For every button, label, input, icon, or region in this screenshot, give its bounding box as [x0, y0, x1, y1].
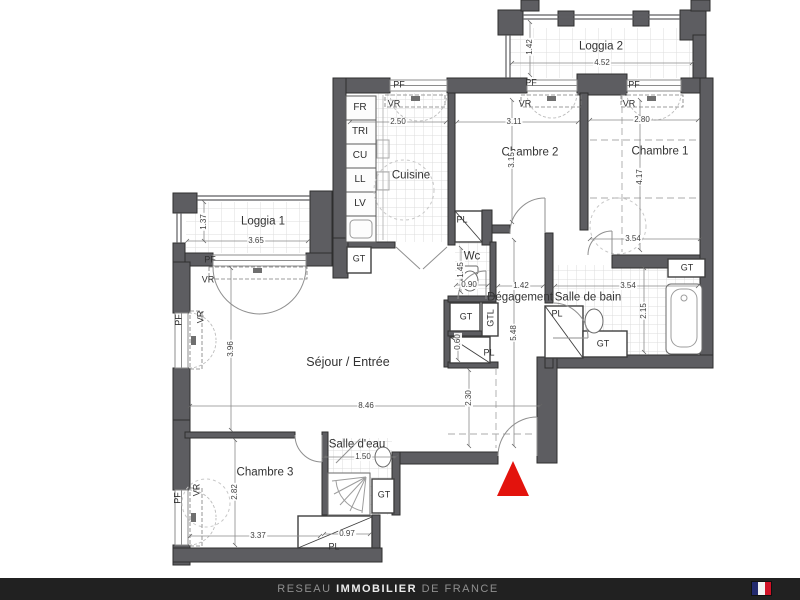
window-pf-chambre1: PF	[628, 81, 640, 90]
dim-sejour-width: 8.46	[357, 402, 375, 410]
brand-part-3: DE FRANCE	[422, 583, 499, 595]
dim-loggia1-width: 3.65	[247, 237, 265, 245]
mark-tri: TRI	[352, 127, 368, 137]
dim-wc-depth: 1.45	[457, 261, 465, 279]
blind-vr-sejour: VR	[202, 276, 215, 285]
dim-degagement-width: 1.42	[512, 282, 530, 290]
dim-chambre2-width: 3.11	[506, 118, 523, 126]
closet-pl-chambre2: PL	[456, 216, 467, 225]
window-pf-chambre3: PF	[174, 492, 183, 504]
dim-placard-chambre3-width: 0.97	[338, 530, 356, 538]
mark-cu-cooker: CU	[353, 151, 367, 161]
blind-vr-chambre2: VR	[519, 100, 532, 109]
mark-fr-fridge: FR	[353, 103, 366, 113]
dim-placard-depth: 0.60	[454, 333, 462, 351]
room-label-chambre-1: Chambre 1	[632, 146, 689, 158]
blind-vr-chambre1: VR	[623, 100, 636, 109]
blind-vr-chambre3: VR	[193, 484, 202, 497]
dim-cuisine-width: 2.50	[389, 118, 407, 126]
room-label-degagement: Dégagement	[487, 292, 553, 304]
closet-pl-chambre3: PL	[328, 543, 339, 552]
floor-plan-page: Loggia 2 Chambre 1 Chambre 2 Cuisine Log…	[0, 0, 800, 600]
dim-chambre1-width: 2.80	[633, 116, 651, 124]
dim-salle-de-bain-width: 3.54	[619, 282, 637, 290]
dim-wc-width: 0.90	[460, 281, 478, 289]
window-pf-cuisine: PF	[393, 81, 405, 90]
dim-salle-d-eau-width: 1.50	[354, 453, 372, 461]
dim-loggia1-depth: 1.37	[200, 213, 208, 231]
brand-text: RESEAU IMMOBILIER DE FRANCE	[277, 583, 498, 595]
brand-part-1: RESEAU	[277, 583, 331, 595]
room-label-loggia-1: Loggia 1	[241, 216, 285, 228]
room-label-wc: Wc	[464, 251, 481, 263]
brand-part-2: IMMOBILIER	[336, 583, 417, 595]
flag-red-stripe	[765, 582, 771, 595]
dim-chambre3-depth: 2.82	[231, 483, 239, 501]
room-label-chambre-3: Chambre 3	[237, 467, 294, 479]
footer-bar: RESEAU IMMOBILIER DE FRANCE	[0, 578, 800, 600]
room-label-cuisine: Cuisine	[392, 170, 430, 182]
dim-loggia2-depth: 1.42	[526, 38, 534, 56]
duct-gt-cuisine: GT	[353, 255, 366, 264]
french-flag-icon	[752, 582, 771, 595]
entrance-marker	[497, 461, 529, 496]
duct-gt-salle-de-bain: GT	[597, 340, 610, 349]
window-pf-sejour-left: PF	[175, 314, 184, 326]
room-label-salle-de-bain: Salle de bain	[555, 292, 622, 304]
window-pf-sejour: PF	[204, 256, 216, 265]
blind-vr-sejour-left: VR	[197, 311, 206, 324]
dim-chambre1-depth: 4.17	[636, 168, 644, 186]
duct-gt-salle-d-eau: GT	[378, 491, 391, 500]
room-label-loggia-2: Loggia 2	[579, 41, 623, 53]
room-label-salle-d-eau: Salle d'eau	[329, 439, 386, 451]
blind-vr-cuisine: VR	[388, 100, 401, 109]
dim-loggia2-width: 4.52	[593, 59, 611, 67]
dim-degagement-depth: 5.48	[510, 324, 518, 342]
kitchen-appliances	[346, 95, 389, 242]
duct-gt-degagement: GT	[460, 313, 473, 322]
window-pf-chambre2: PF	[525, 79, 537, 88]
closet-pl-degagement: PL	[483, 349, 494, 358]
dim-entree-depth: 2.30	[465, 389, 473, 407]
mark-ll-washer: LL	[354, 175, 365, 185]
dim-chambre2-depth: 3.15	[508, 151, 516, 169]
dim-chambre3-width: 3.37	[249, 532, 267, 540]
dim-chambre1-bottom-width: 3.54	[624, 235, 642, 243]
floor-plan-drawing	[0, 0, 800, 600]
duct-gtl: GTL	[487, 309, 496, 327]
closet-pl-salle-de-bain: PL	[551, 310, 562, 319]
room-label-sejour-entree: Séjour / Entrée	[306, 356, 389, 369]
dim-sejour-depth: 3.96	[227, 340, 235, 358]
dim-salle-de-bain-depth: 2.15	[640, 302, 648, 320]
mark-lv-dishwasher: LV	[354, 199, 366, 209]
duct-gt-chambre1: GT	[681, 264, 694, 273]
